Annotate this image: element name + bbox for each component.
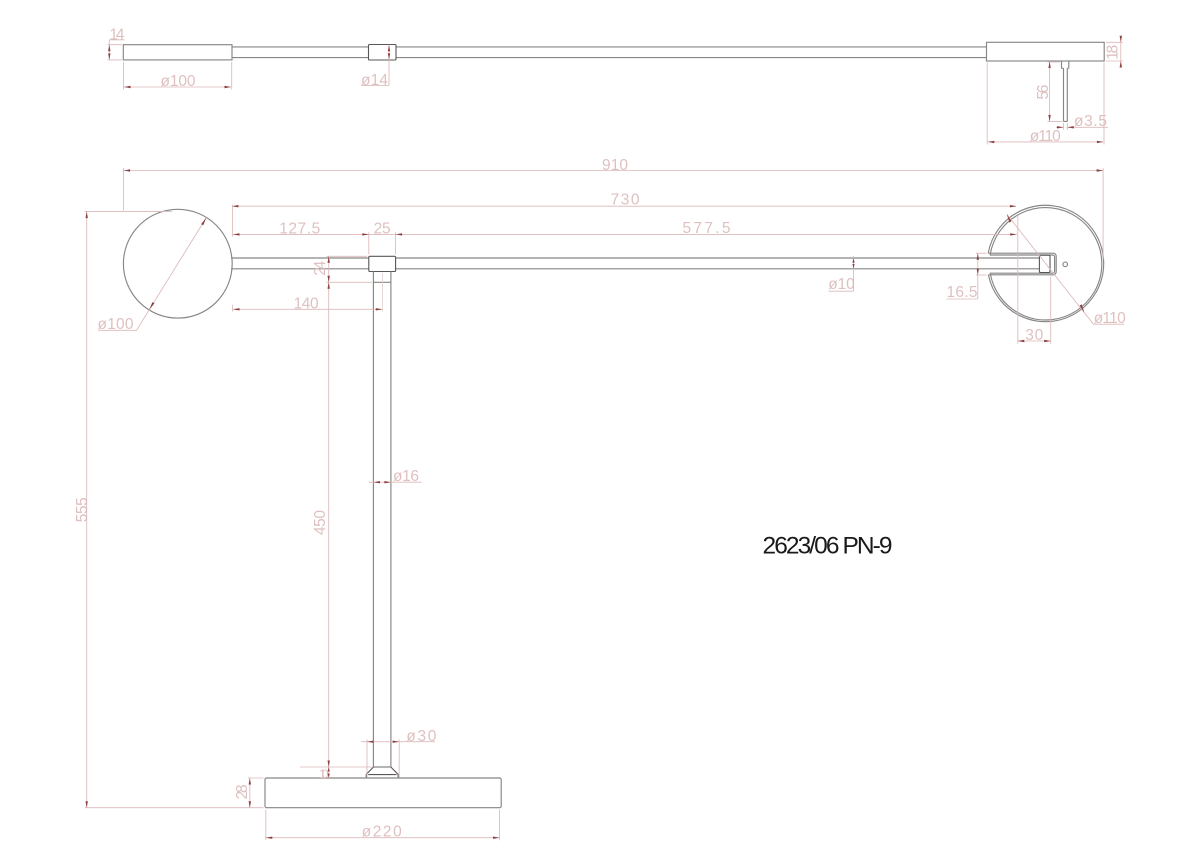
svg-text:450: 450 bbox=[312, 510, 329, 535]
svg-text:ø110: ø110 bbox=[1030, 128, 1061, 145]
svg-text:ø30: ø30 bbox=[406, 728, 436, 745]
svg-text:28: 28 bbox=[234, 784, 251, 799]
svg-text:24: 24 bbox=[312, 260, 329, 275]
svg-text:910: 910 bbox=[602, 157, 628, 174]
svg-text:30: 30 bbox=[1025, 327, 1043, 344]
svg-text:555: 555 bbox=[74, 497, 91, 522]
svg-text:16.5: 16.5 bbox=[947, 284, 978, 301]
svg-text:14: 14 bbox=[110, 27, 125, 44]
svg-text:577.5: 577.5 bbox=[683, 220, 731, 237]
svg-text:ø16: ø16 bbox=[393, 468, 419, 485]
svg-text:2623/06 PN-9: 2623/06 PN-9 bbox=[763, 533, 893, 560]
svg-text:127.5: 127.5 bbox=[279, 220, 320, 237]
svg-text:ø14: ø14 bbox=[361, 72, 388, 89]
svg-text:140: 140 bbox=[294, 295, 319, 312]
svg-text:ø10: ø10 bbox=[828, 276, 855, 293]
svg-text:ø110: ø110 bbox=[1094, 310, 1126, 327]
svg-text:18: 18 bbox=[1104, 45, 1121, 60]
svg-text:25: 25 bbox=[374, 220, 391, 237]
svg-text:10: 10 bbox=[319, 767, 329, 781]
